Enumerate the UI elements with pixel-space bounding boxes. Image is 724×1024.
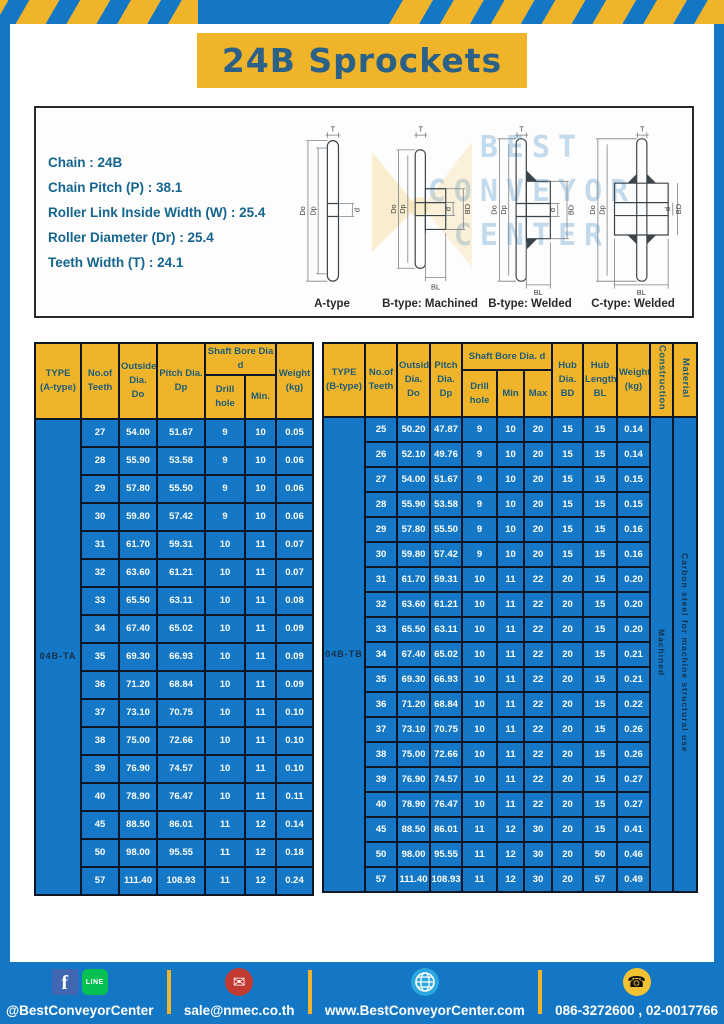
data-cell: 12 (497, 817, 524, 842)
data-cell: 0.20 (617, 567, 650, 592)
sprocket-diagram-b-machined: T Do Dp d (380, 124, 480, 310)
data-cell: 11 (497, 742, 524, 767)
data-cell: 71.20 (397, 692, 430, 717)
data-cell: 20 (552, 842, 583, 867)
data-cell: 47.87 (430, 417, 462, 442)
spec-line: Chain : 24B (48, 152, 282, 173)
data-cell: 74.57 (430, 767, 462, 792)
data-cell: 74.57 (157, 755, 205, 783)
sprocket-diagram-b-welded: T Do Dp (480, 124, 580, 310)
data-cell: 15 (552, 517, 583, 542)
globe-icon[interactable] (411, 968, 439, 996)
data-cell: 68.84 (157, 671, 205, 699)
data-cell: 9 (205, 419, 245, 447)
data-cell: 95.55 (157, 839, 205, 867)
spec-line: Roller Diameter (Dr) : 25.4 (48, 227, 282, 248)
data-cell: 53.58 (430, 492, 462, 517)
data-cell: 59.80 (119, 503, 157, 531)
data-cell: 0.05 (276, 419, 313, 447)
data-cell: 11 (462, 842, 497, 867)
data-cell: 11 (497, 617, 524, 642)
data-cell: 11 (497, 592, 524, 617)
data-cell: 10 (205, 671, 245, 699)
data-cell: 65.02 (430, 642, 462, 667)
data-cell: 22 (524, 592, 552, 617)
data-cell: 51.67 (157, 419, 205, 447)
data-cell: 10 (462, 592, 497, 617)
table-row: 2652.1049.769102015150.14 (323, 442, 697, 467)
data-cell: 20 (524, 492, 552, 517)
social-handle[interactable]: @BestConveyorCenter (6, 1003, 153, 1018)
data-cell: 22 (524, 717, 552, 742)
data-cell: 57.42 (430, 542, 462, 567)
col-header-teeth: No.of Teeth (365, 343, 397, 417)
data-cell: 0.41 (617, 817, 650, 842)
data-cell: 15 (583, 417, 617, 442)
data-cell: 0.09 (276, 643, 313, 671)
data-cell: 12 (245, 811, 276, 839)
data-cell: 15 (583, 467, 617, 492)
col-header-hub-dia: Hub Dia. BD (552, 343, 583, 417)
data-cell: 63.11 (157, 587, 205, 615)
spec-line: Roller Link Inside Width (W) : 25.4 (48, 202, 282, 223)
data-cell: 20 (524, 417, 552, 442)
data-cell: 55.50 (157, 475, 205, 503)
hazard-stripe-band (0, 0, 724, 24)
data-cell: 0.27 (617, 792, 650, 817)
data-cell: 20 (552, 567, 583, 592)
data-cell: 29 (365, 517, 397, 542)
svg-text:T: T (331, 124, 336, 133)
data-cell: 10 (245, 447, 276, 475)
data-cell: 10 (245, 475, 276, 503)
col-header-construction: Construction (650, 343, 673, 417)
footer-social: f LINE @BestConveyorCenter (6, 966, 153, 1018)
data-cell: 20 (552, 592, 583, 617)
data-cell: 33 (365, 617, 397, 642)
data-cell: 27 (365, 467, 397, 492)
data-cell: 0.10 (276, 755, 313, 783)
data-cell: 9 (462, 492, 497, 517)
data-cell: 98.00 (397, 842, 430, 867)
footer-website: www.BestConveyorCenter.com (325, 966, 525, 1018)
data-cell: 15 (583, 742, 617, 767)
table-row: 4078.9076.4710112220150.27 (323, 792, 697, 817)
data-cell: 0.22 (617, 692, 650, 717)
data-cell: 45 (81, 811, 119, 839)
table-row: 3365.5063.1110112220150.20 (323, 617, 697, 642)
spec-line: Chain Pitch (P) : 38.1 (48, 177, 282, 198)
data-cell: 20 (524, 517, 552, 542)
data-cell: 15 (552, 467, 583, 492)
table-row: 04B-TA2754.0051.679100.05 (35, 419, 313, 447)
data-cell: 37 (365, 717, 397, 742)
data-cell: 15 (583, 442, 617, 467)
data-cell: 0.26 (617, 742, 650, 767)
data-cell: 11 (497, 792, 524, 817)
data-cell: 30 (524, 867, 552, 892)
data-cell: 0.09 (276, 615, 313, 643)
data-cell: 10 (462, 742, 497, 767)
table-row: 5098.0095.5511123020500.46 (323, 842, 697, 867)
data-cell: 11 (497, 667, 524, 692)
data-cell: 15 (552, 442, 583, 467)
data-cell: 11 (497, 767, 524, 792)
data-cell: 10 (462, 617, 497, 642)
table-row: 3059.8057.429102015150.16 (323, 542, 697, 567)
data-cell: 9 (462, 442, 497, 467)
website-url[interactable]: www.BestConveyorCenter.com (325, 1003, 525, 1018)
data-cell: 0.06 (276, 447, 313, 475)
data-cell: 61.21 (430, 592, 462, 617)
svg-text:Dp: Dp (597, 205, 606, 214)
data-cell: 11 (462, 867, 497, 892)
data-cell: 10 (245, 419, 276, 447)
data-cell: 75.00 (119, 727, 157, 755)
data-cell: 78.90 (397, 792, 430, 817)
data-cell: 10 (462, 692, 497, 717)
data-cell: 59.80 (397, 542, 430, 567)
data-cell: 0.46 (617, 842, 650, 867)
data-cell: 11 (205, 811, 245, 839)
data-cell: 34 (365, 642, 397, 667)
data-cell: 50 (81, 839, 119, 867)
data-cell: 9 (205, 503, 245, 531)
data-cell: 39 (81, 755, 119, 783)
data-cell: 38 (365, 742, 397, 767)
data-cell: 59.31 (430, 567, 462, 592)
data-cell: 9 (462, 467, 497, 492)
data-cell: 15 (583, 817, 617, 842)
facebook-icon[interactable]: f (52, 969, 78, 995)
data-cell: 29 (81, 475, 119, 503)
data-cell: 55.50 (430, 517, 462, 542)
data-cell: 12 (245, 867, 276, 895)
data-cell: 28 (81, 447, 119, 475)
footer: f LINE @BestConveyorCenter ✉ sale@nmec.c… (0, 962, 724, 1024)
data-cell: 20 (552, 717, 583, 742)
data-cell: 10 (205, 559, 245, 587)
svg-text:Do: Do (298, 206, 307, 215)
svg-text:T: T (519, 124, 524, 133)
data-cell: 50.20 (397, 417, 430, 442)
data-cell: 0.18 (276, 839, 313, 867)
data-cell: 20 (524, 542, 552, 567)
data-cell: 10 (462, 567, 497, 592)
data-cell: 61.70 (397, 567, 430, 592)
data-cell: 63.60 (119, 559, 157, 587)
data-cell: 65.50 (397, 617, 430, 642)
data-cell: 15 (552, 492, 583, 517)
data-cell: 26 (365, 442, 397, 467)
data-cell: 15 (583, 692, 617, 717)
table-row: 3263.6061.2110112220150.20 (323, 592, 697, 617)
data-cell: 0.20 (617, 592, 650, 617)
data-cell: 15 (583, 667, 617, 692)
mail-icon[interactable]: ✉ (225, 968, 253, 996)
data-cell: 0.09 (276, 671, 313, 699)
data-cell: 15 (552, 417, 583, 442)
data-cell: 11 (245, 531, 276, 559)
data-cell: 9 (462, 517, 497, 542)
data-cell: 11 (245, 643, 276, 671)
col-header-shaft-bore: Shaft Bore Dia d (205, 343, 276, 375)
col-header-pitch-dia: Pitch Dia. Dp (157, 343, 205, 419)
svg-text:BL: BL (534, 288, 543, 296)
data-cell: 0.24 (276, 867, 313, 895)
data-cell: 33 (81, 587, 119, 615)
data-cell: 0.07 (276, 559, 313, 587)
svg-text:T: T (418, 124, 423, 133)
data-cell: 30 (524, 817, 552, 842)
col-header-weight: Weight (kg) (276, 343, 313, 419)
footer-email: ✉ sale@nmec.co.th (184, 966, 295, 1018)
data-cell: 0.06 (276, 475, 313, 503)
data-cell: 11 (497, 567, 524, 592)
data-cell: 0.15 (617, 492, 650, 517)
data-cell: 10 (462, 667, 497, 692)
data-cell: 15 (583, 542, 617, 567)
page-body: 24B Sprockets Chain : 24B Chain Pitch (P… (0, 24, 724, 962)
data-cell: 22 (524, 642, 552, 667)
data-cell: 57.80 (119, 475, 157, 503)
data-cell: 0.16 (617, 542, 650, 567)
svg-text:BL: BL (637, 288, 646, 296)
svg-text:d: d (443, 207, 452, 211)
data-cell: 22 (524, 767, 552, 792)
data-cell: 20 (552, 742, 583, 767)
data-cell: 0.10 (276, 727, 313, 755)
data-cell: 30 (524, 842, 552, 867)
data-cell: 57 (583, 867, 617, 892)
data-cell: 0.15 (617, 467, 650, 492)
data-cell: 72.66 (157, 727, 205, 755)
data-cell: 11 (245, 783, 276, 811)
data-cell: 12 (245, 839, 276, 867)
col-header-min: Min (497, 370, 524, 416)
data-cell: 11 (245, 727, 276, 755)
data-cell: 52.10 (397, 442, 430, 467)
col-header-outside-dia: Outside Dia. Do (119, 343, 157, 419)
col-header-shaft-bore: Shaft Bore Dia. d (462, 343, 552, 370)
data-cell: 36 (365, 692, 397, 717)
data-cell: 35 (365, 667, 397, 692)
data-cell: 11 (245, 587, 276, 615)
data-cell: 0.14 (617, 442, 650, 467)
data-cell: 55.90 (397, 492, 430, 517)
data-cell: 50 (583, 842, 617, 867)
data-cell: 20 (552, 867, 583, 892)
data-cell: 72.66 (430, 742, 462, 767)
table-row: 3467.4065.0210112220150.21 (323, 642, 697, 667)
data-cell: 11 (245, 671, 276, 699)
hazard-stripes-right (384, 0, 724, 24)
data-cell: 10 (245, 503, 276, 531)
data-cell: 32 (365, 592, 397, 617)
svg-text:Do: Do (588, 205, 597, 214)
table-row: 4588.5086.0111123020150.41 (323, 817, 697, 842)
data-cell: 20 (524, 467, 552, 492)
diagram-caption: B-type: Welded (488, 298, 572, 310)
data-cell: 0.14 (617, 417, 650, 442)
hazard-stripes-left (0, 0, 198, 24)
data-cell: 78.90 (119, 783, 157, 811)
table-row: 04B-TB2550.2047.879102015150.14MachinedC… (323, 417, 697, 442)
data-cell: 108.93 (157, 867, 205, 895)
col-header-drill-hole: Drill hole (205, 375, 245, 419)
data-cell: 65.02 (157, 615, 205, 643)
data-cell: 31 (365, 567, 397, 592)
phone-icon[interactable]: ☎ (623, 968, 651, 996)
data-cell: 10 (462, 717, 497, 742)
construction-value: Machined (650, 417, 673, 892)
data-cell: 10 (497, 467, 524, 492)
col-header-min: Min. (245, 375, 276, 419)
data-cell: 39 (365, 767, 397, 792)
data-cell: 15 (583, 717, 617, 742)
data-cell: 88.50 (119, 811, 157, 839)
footer-divider (538, 970, 542, 1014)
line-icon[interactable]: LINE (82, 969, 108, 995)
data-cell: 10 (205, 727, 245, 755)
data-cell: 36 (81, 671, 119, 699)
data-cell: 20 (524, 442, 552, 467)
data-cell: 12 (497, 867, 524, 892)
table-row: 2957.8055.509102015150.16 (323, 517, 697, 542)
data-cell: 22 (524, 742, 552, 767)
table-row: 3773.1070.7510112220150.26 (323, 717, 697, 742)
data-cell: 10 (462, 642, 497, 667)
phone-numbers[interactable]: 086-3272600 , 02-0017766 (555, 1003, 718, 1018)
data-cell: 0.26 (617, 717, 650, 742)
data-cell: 66.93 (157, 643, 205, 671)
data-cell: 22 (524, 667, 552, 692)
data-cell: 0.08 (276, 587, 313, 615)
data-cell: 10 (205, 615, 245, 643)
data-cell: 15 (583, 617, 617, 642)
table-b-type: TYPE (B-type) No.of Teeth Outside Dia. D… (322, 342, 698, 893)
data-cell: 98.00 (119, 839, 157, 867)
data-cell: 30 (365, 542, 397, 567)
svg-text:Dp: Dp (499, 205, 508, 214)
data-cell: 11 (245, 559, 276, 587)
email-address[interactable]: sale@nmec.co.th (184, 1003, 295, 1018)
spec-tables: TYPE (A-type) No.of Teeth Outside Dia. D… (34, 342, 694, 896)
data-cell: 20 (552, 792, 583, 817)
data-cell: 10 (205, 531, 245, 559)
data-cell: 76.90 (119, 755, 157, 783)
data-cell: 76.47 (430, 792, 462, 817)
data-cell: 9 (205, 475, 245, 503)
data-cell: 20 (552, 817, 583, 842)
col-header-type: TYPE (B-type) (323, 343, 365, 417)
data-cell: 69.30 (397, 667, 430, 692)
data-cell: 10 (462, 792, 497, 817)
data-cell: 22 (524, 692, 552, 717)
data-cell: 15 (583, 492, 617, 517)
data-cell: 88.50 (397, 817, 430, 842)
chain-specs: Chain : 24B Chain Pitch (P) : 38.1 Rolle… (36, 108, 282, 316)
data-cell: 71.20 (119, 671, 157, 699)
data-cell: 10 (497, 442, 524, 467)
data-cell: 25 (365, 417, 397, 442)
col-header-outside-dia: Outside Dia. Do (397, 343, 430, 417)
data-cell: 111.40 (119, 867, 157, 895)
data-cell: 10 (205, 643, 245, 671)
data-cell: 0.21 (617, 667, 650, 692)
data-cell: 35 (81, 643, 119, 671)
table-row: 2754.0051.679102015150.15 (323, 467, 697, 492)
diagram-caption: A-type (314, 298, 350, 310)
data-cell: 68.84 (430, 692, 462, 717)
data-cell: 0.49 (617, 867, 650, 892)
data-cell: 40 (81, 783, 119, 811)
svg-text:Do: Do (490, 205, 499, 214)
data-cell: 65.50 (119, 587, 157, 615)
data-cell: 57 (81, 867, 119, 895)
data-cell: 63.11 (430, 617, 462, 642)
col-header-drill-hole: Drill hole (462, 370, 497, 416)
col-header-weight: Weight (kg) (617, 343, 650, 417)
data-cell: 9 (462, 542, 497, 567)
data-cell: 51.67 (430, 467, 462, 492)
data-cell: 20 (552, 692, 583, 717)
data-cell: 9 (462, 417, 497, 442)
svg-text:BD: BD (674, 204, 683, 214)
data-cell: 10 (497, 517, 524, 542)
data-cell: 0.07 (276, 531, 313, 559)
data-cell: 30 (81, 503, 119, 531)
data-cell: 69.30 (119, 643, 157, 671)
data-cell: 9 (205, 447, 245, 475)
data-cell: 11 (497, 692, 524, 717)
spec-line: Teeth Width (T) : 24.1 (48, 252, 282, 273)
data-cell: 61.21 (157, 559, 205, 587)
sprocket-diagram-c-welded: T Do Dp (580, 124, 686, 310)
data-cell: 70.75 (430, 717, 462, 742)
svg-text:d: d (663, 207, 672, 211)
data-cell: 67.40 (397, 642, 430, 667)
data-cell: 86.01 (430, 817, 462, 842)
table-row: 3569.3066.9310112220150.21 (323, 667, 697, 692)
svg-text:Do: Do (389, 204, 398, 213)
type-label-a: 04B-TA (35, 419, 81, 895)
data-cell: 11 (497, 642, 524, 667)
svg-text:Dp: Dp (308, 206, 317, 215)
svg-text:BD: BD (566, 205, 575, 215)
data-cell: 22 (524, 567, 552, 592)
data-cell: 20 (552, 767, 583, 792)
data-cell: 70.75 (157, 699, 205, 727)
data-cell: 11 (462, 817, 497, 842)
data-cell: 10 (205, 699, 245, 727)
data-cell: 50 (365, 842, 397, 867)
data-cell: 73.10 (119, 699, 157, 727)
sprocket-diagram-a-type: T Do Dp d (284, 124, 380, 310)
data-cell: 95.55 (430, 842, 462, 867)
data-cell: 75.00 (397, 742, 430, 767)
col-header-max: Max (524, 370, 552, 416)
table-row: 3976.9074.5710112220150.27 (323, 767, 697, 792)
data-cell: 34 (81, 615, 119, 643)
col-header-material: Material (673, 343, 697, 417)
col-header-hub-length: Hub Length BL (583, 343, 617, 417)
data-cell: 0.21 (617, 642, 650, 667)
data-cell: 27 (81, 419, 119, 447)
data-cell: 20 (552, 642, 583, 667)
svg-text:Dp: Dp (398, 204, 407, 213)
data-cell: 59.31 (157, 531, 205, 559)
